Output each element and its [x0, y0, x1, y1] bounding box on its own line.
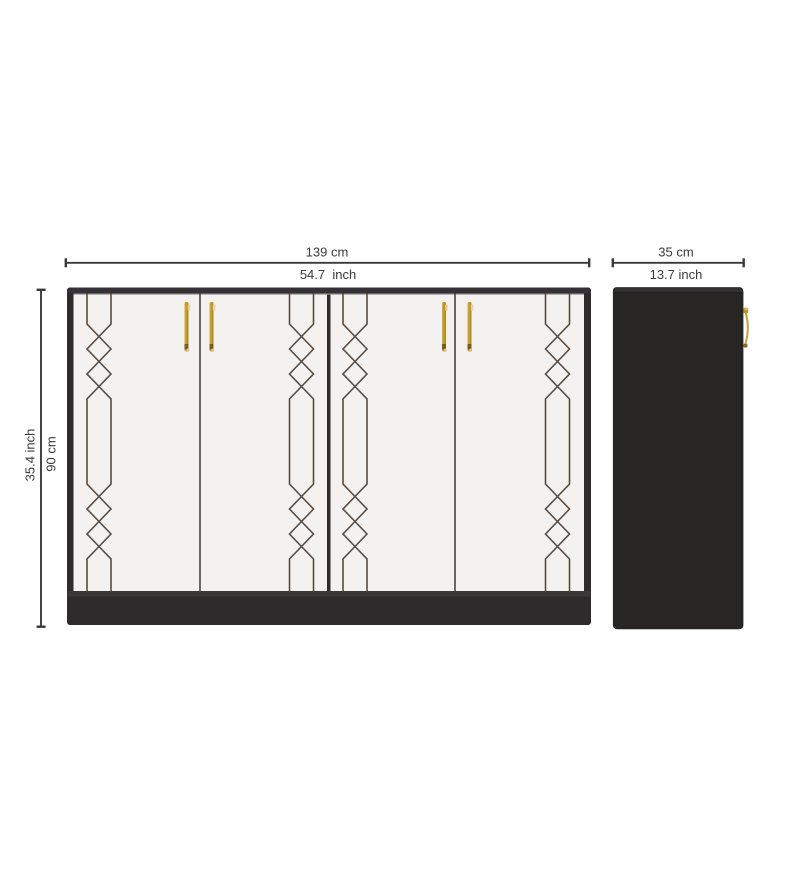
svg-text:35.4 inch: 35.4 inch	[23, 429, 38, 482]
svg-text:13.7 inch: 13.7 inch	[650, 267, 703, 282]
svg-text:54.7 inch: 54.7 inch	[300, 267, 356, 282]
svg-text:139 cm: 139 cm	[306, 245, 349, 260]
svg-text:90 cm: 90 cm	[44, 436, 59, 471]
svg-text:35 cm: 35 cm	[658, 245, 693, 260]
